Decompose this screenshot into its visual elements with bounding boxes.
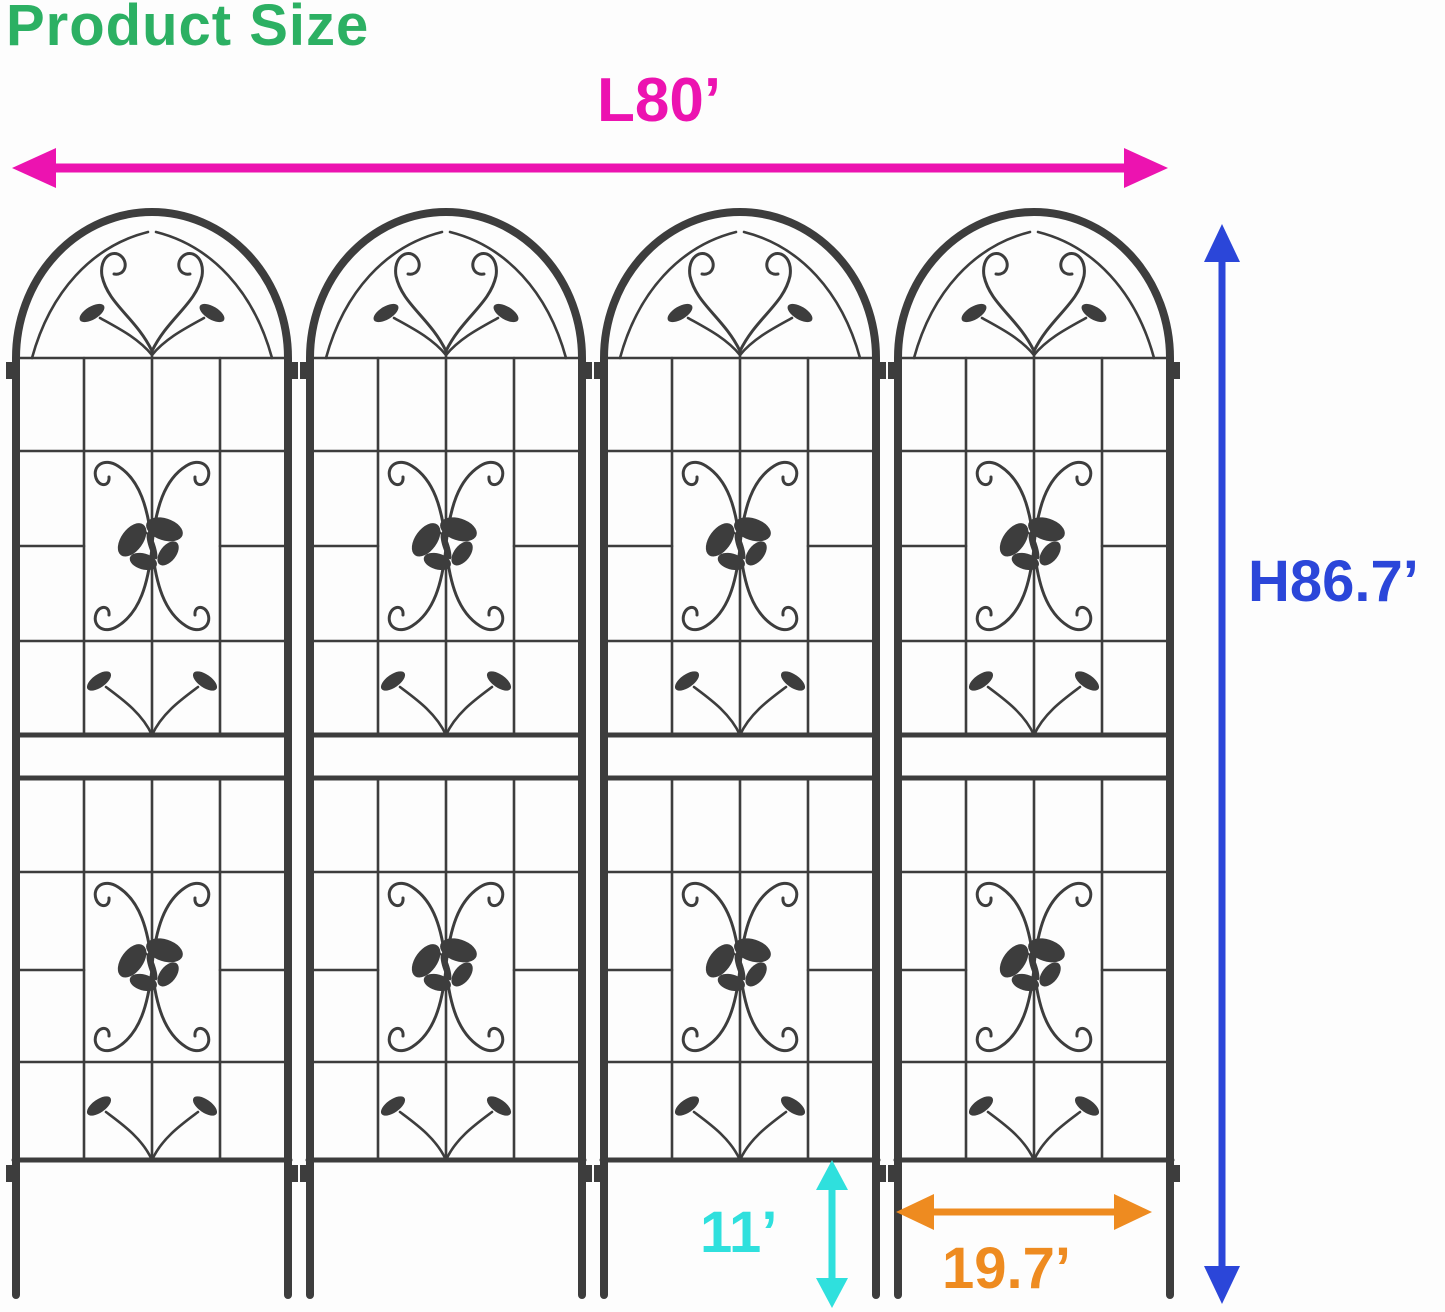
height-dimension-label: H86.7’ — [1248, 553, 1419, 611]
trellis-panel-2 — [300, 208, 592, 1300]
height-arrow-icon — [1198, 222, 1246, 1306]
ground-stake-arrow-icon — [810, 1158, 854, 1310]
length-dimension-label: L80’ — [597, 70, 721, 132]
trellis-panel-3 — [594, 208, 886, 1300]
ground-stake-dimension-label: 11’ — [700, 1204, 777, 1262]
panel-width-dimension-label: 19.7’ — [942, 1240, 1071, 1298]
product-size-diagram: Product Size L80’ H86.7’ 11’ 19.7’ — [0, 0, 1445, 1312]
trellis-panel-4 — [888, 208, 1180, 1300]
length-arrow-icon — [8, 146, 1172, 190]
page-title: Product Size — [6, 0, 369, 59]
panel-width-arrow-icon — [892, 1190, 1156, 1234]
trellis-panel-1 — [6, 208, 298, 1300]
